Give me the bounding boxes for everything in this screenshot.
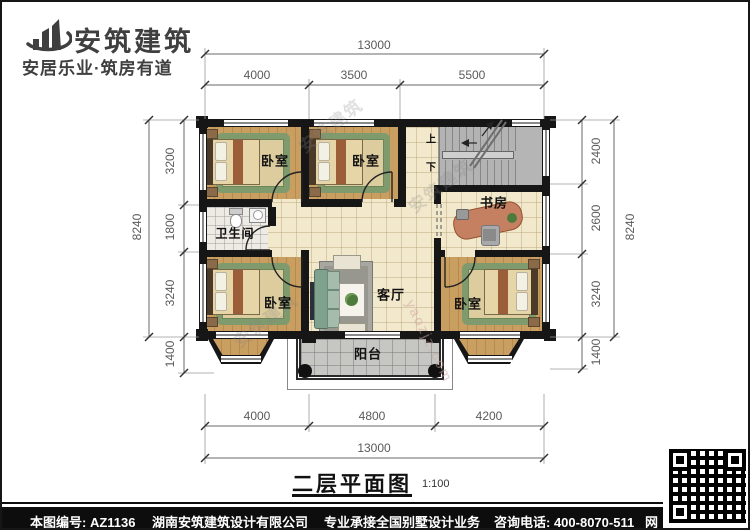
dim-top-total: 13000 bbox=[334, 38, 414, 52]
window bbox=[512, 119, 540, 127]
window bbox=[542, 130, 550, 176]
dim-bottom-seg-3: 4200 bbox=[459, 409, 519, 423]
dim-right-seg-1: 2400 bbox=[589, 129, 603, 173]
title-underline bbox=[292, 494, 412, 497]
stairs-up-label: 上 bbox=[426, 131, 436, 146]
room-label-bedroom-tl: 卧室 bbox=[261, 151, 289, 170]
room-label-balcony: 阳台 bbox=[354, 344, 382, 363]
stairs-down-label: 下 bbox=[426, 159, 436, 174]
dim-top-seg-2: 3500 bbox=[324, 68, 384, 82]
window bbox=[224, 119, 288, 127]
dim-left-seg-3: 3240 bbox=[163, 271, 177, 315]
window bbox=[542, 196, 550, 246]
footer-divider bbox=[2, 502, 750, 504]
bay-window-right-glass bbox=[468, 355, 512, 362]
company-name: 湖南安筑建筑设计有限公司 bbox=[152, 512, 308, 530]
footer-bar: 本图编号: AZ1136 湖南安筑建筑设计有限公司 专业承接全国别墅设计业务 咨… bbox=[2, 507, 750, 530]
room-label-study: 书房 bbox=[480, 193, 508, 212]
dim-top-seg-1: 4000 bbox=[227, 68, 287, 82]
dim-bottom-seg-1: 4000 bbox=[227, 409, 287, 423]
room-label-bedroom-bl: 卧室 bbox=[264, 293, 292, 312]
company-service: 专业承接全国别墅设计业务 bbox=[324, 512, 480, 530]
bay-window-left-glass bbox=[221, 355, 261, 362]
company-phone: 咨询电话: 400-8070-511 bbox=[494, 512, 634, 530]
dim-bottom-total: 13000 bbox=[334, 441, 414, 455]
window bbox=[460, 331, 520, 339]
drawing-number: 本图编号: AZ1136 bbox=[30, 512, 135, 530]
plant bbox=[345, 293, 358, 306]
window bbox=[542, 264, 550, 322]
dim-left-seg-4: 1400 bbox=[163, 332, 177, 376]
web-label: 网 bbox=[645, 512, 658, 530]
dim-top-seg-3: 5500 bbox=[442, 68, 502, 82]
brand-tagline: 安居乐业·筑房有道 bbox=[22, 54, 173, 79]
qr-code bbox=[663, 443, 750, 529]
drawing-scale: 1:100 bbox=[422, 478, 450, 490]
dim-right-seg-3: 3240 bbox=[589, 272, 603, 316]
dim-left-seg-2: 1800 bbox=[163, 205, 177, 249]
desk-plant bbox=[507, 213, 517, 223]
dim-left-total: 8240 bbox=[130, 205, 144, 249]
stairs-upper-flight bbox=[439, 127, 517, 151]
balcony-column-left bbox=[298, 364, 312, 378]
dim-right-total: 8240 bbox=[623, 205, 637, 249]
room-label-living: 客厅 bbox=[377, 285, 405, 304]
room-label-bathroom: 卫生间 bbox=[215, 225, 254, 242]
room-label-bedroom-tm: 卧室 bbox=[352, 151, 380, 170]
dim-bottom-seg-2: 4800 bbox=[342, 409, 402, 423]
window bbox=[199, 212, 207, 242]
window bbox=[199, 264, 207, 322]
room-label-bedroom-br: 卧室 bbox=[454, 294, 482, 313]
dim-left-seg-1: 3200 bbox=[163, 139, 177, 183]
dim-right-seg-2: 2600 bbox=[589, 196, 603, 240]
desk-lamp bbox=[456, 209, 469, 220]
window bbox=[199, 134, 207, 190]
floor-plan-sheet: 安筑建筑 安居乐业·筑房有道 bbox=[0, 0, 750, 530]
company-logo-icon bbox=[24, 16, 72, 56]
balcony-sliding-door bbox=[345, 331, 400, 339]
dim-right-seg-4: 1400 bbox=[589, 330, 603, 374]
